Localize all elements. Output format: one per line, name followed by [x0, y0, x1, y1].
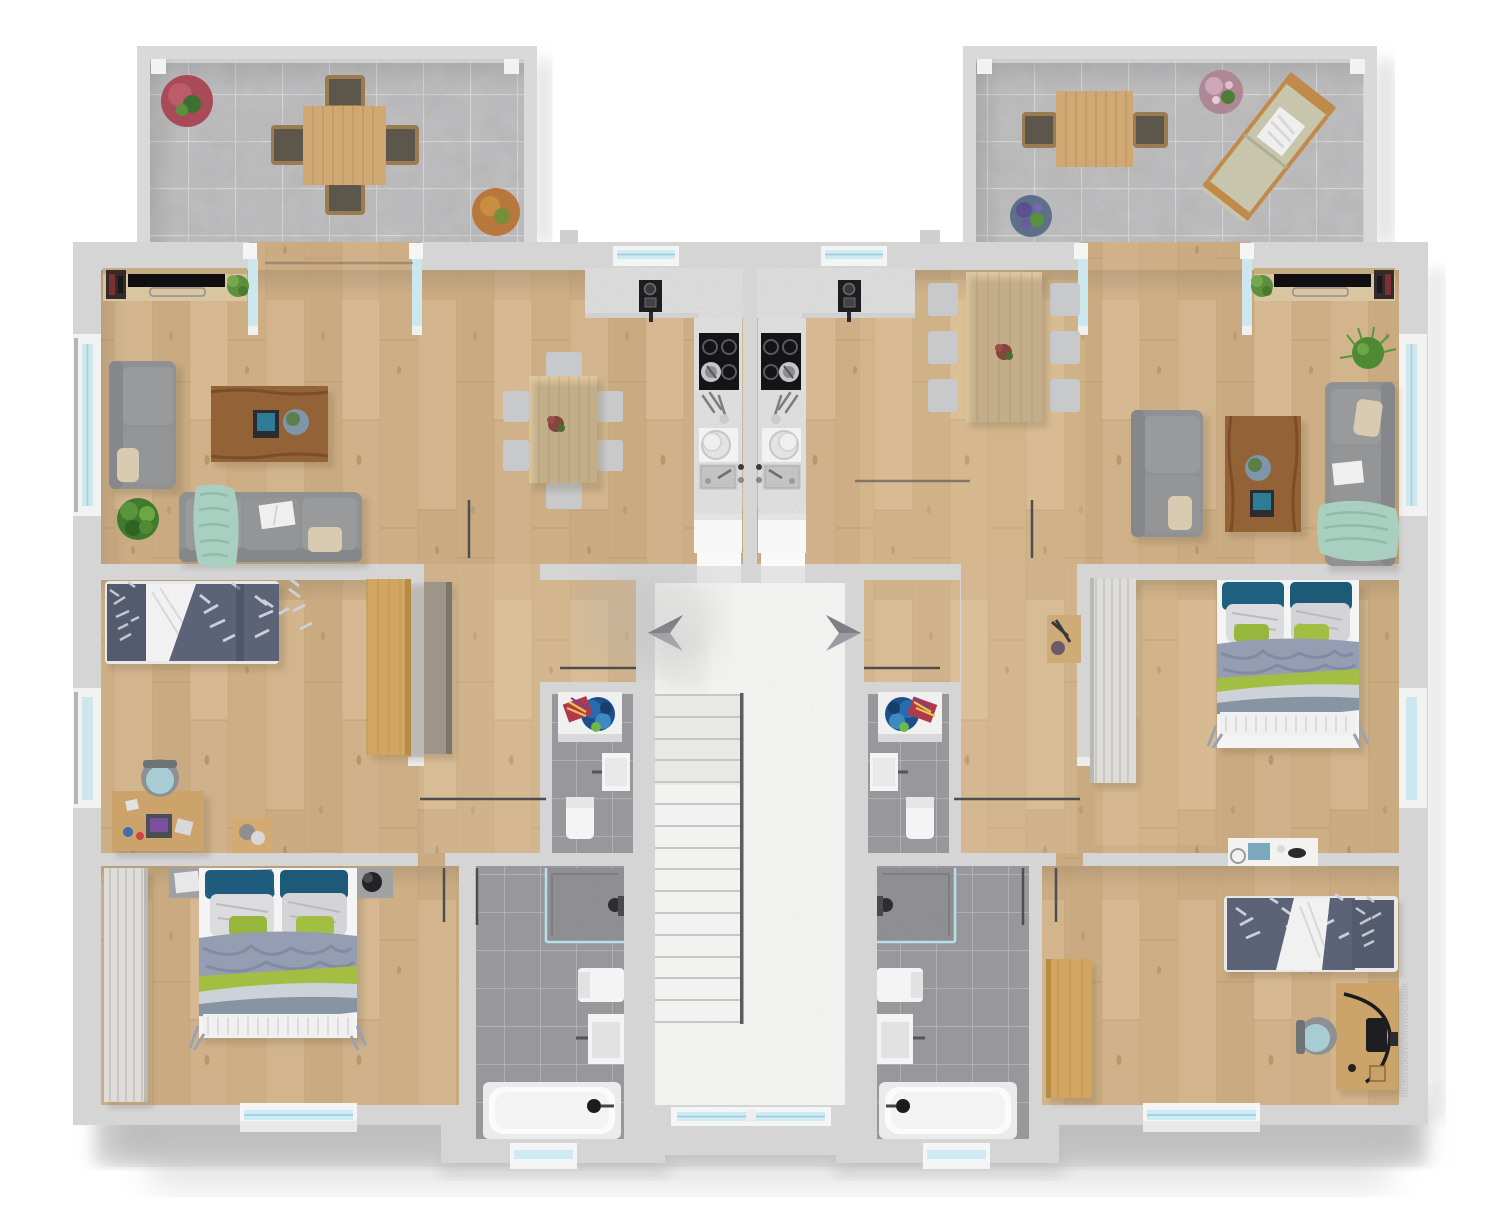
- svg-text:Illustration©ImmoGrafik: Illustration©ImmoGrafik: [1399, 982, 1411, 1098]
